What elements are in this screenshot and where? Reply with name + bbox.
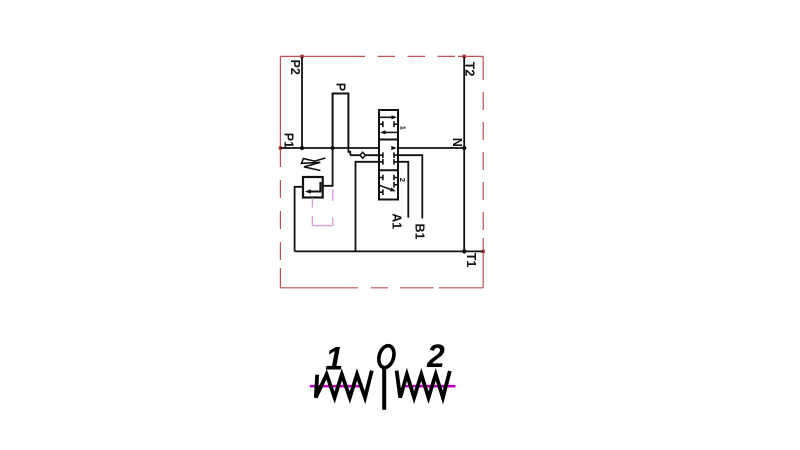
svg-text:N: N xyxy=(450,138,464,147)
svg-text:2: 2 xyxy=(426,338,445,374)
svg-text:B1: B1 xyxy=(413,224,427,240)
svg-text:P: P xyxy=(334,83,348,91)
svg-text:2: 2 xyxy=(398,178,407,182)
svg-text:1: 1 xyxy=(325,340,343,376)
svg-text:T1: T1 xyxy=(464,253,478,268)
svg-text:A1: A1 xyxy=(390,213,404,229)
svg-text:T2: T2 xyxy=(463,62,477,77)
svg-text:1: 1 xyxy=(398,126,407,130)
svg-text:P1: P1 xyxy=(282,133,296,148)
svg-text:P2: P2 xyxy=(288,60,302,75)
